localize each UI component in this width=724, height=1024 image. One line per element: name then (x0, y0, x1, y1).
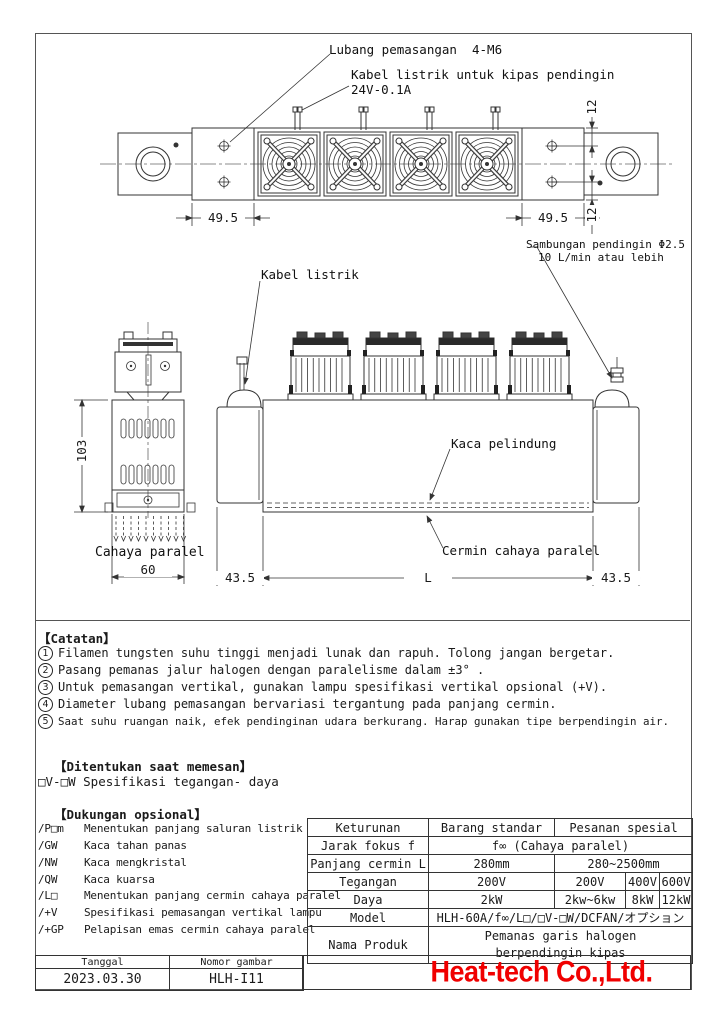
cooling-fan-array (258, 107, 518, 196)
option-desc: Kaca mengkristal (84, 856, 187, 869)
voltage-special-1: 200V (555, 873, 626, 891)
option-code: /NW (38, 856, 84, 869)
note-text: Untuk pemasangan vertikal, gunakan lampu… (58, 680, 607, 694)
product-line1: Pemanas garis halogen (485, 929, 637, 943)
voltage-standard: 200V (429, 873, 555, 891)
spec-row-voltage: Tegangan 200V 200V 400V 600V (308, 873, 693, 891)
fan-cable-label-line2: 24V-0.1A (351, 82, 411, 97)
dim-offset-top: 12 (585, 97, 599, 117)
option-desc: Kaca tahan panas (84, 839, 187, 852)
spec-row-power: Daya 2kW 2kw~6kw 8kW 12kW (308, 891, 693, 909)
option-desc: Pelapisan emas cermin cahaya paralel (84, 923, 315, 936)
cable-terminal-dome (227, 390, 261, 407)
date-value: 2023.03.30 (36, 969, 170, 991)
heater-unit-array (288, 332, 572, 400)
note-number: 3 (38, 680, 53, 695)
focus-value: f∞ (Cahaya paralel) (429, 837, 693, 855)
note-item: 5Saat suhu ruangan naik, efek pendingina… (38, 714, 669, 729)
voltage-label: Tegangan (308, 873, 429, 891)
coolant-label-line2: 10 L/min atau lebih (526, 251, 664, 264)
parallel-mirror-label: Cermin cahaya paralel (442, 543, 600, 558)
front-view-drawing (217, 247, 639, 586)
mirror-special: 280~2500mm (555, 855, 693, 873)
drawing-number-label: Nomor gambar (170, 956, 304, 969)
mirror-label: Panjang cermin L (308, 855, 429, 873)
drawing-number-value: HLH-I11 (170, 969, 304, 991)
cooling-fan (258, 107, 320, 196)
coolant-nipple-dome (595, 390, 629, 407)
dim-front-right: 43.5 (592, 571, 640, 585)
voltage-special-3: 600V (660, 873, 693, 891)
mirror-standard: 280mm (429, 855, 555, 873)
spec-row-focus: Jarak fokus f f∞ (Cahaya paralel) (308, 837, 693, 855)
model-value: HLH-60A/f∞/L□/□V-□W/DCFAN/オプション (429, 909, 693, 927)
option-item: /QWKaca kuarsa (38, 873, 155, 886)
option-code: /QW (38, 873, 84, 886)
note-number: 2 (38, 663, 53, 678)
dim-end-right: 49.5 (531, 211, 575, 225)
dim-offset-bottom: 12 (585, 205, 599, 225)
option-desc: Spesifikasi pemasangan vertikal lampu (84, 906, 322, 919)
option-code: /GW (38, 839, 84, 852)
option-desc: Menentukan panjang cermin cahaya paralel (84, 889, 341, 902)
fan-cable-label: Kabel listrik untuk kipas pendingin24V-0… (351, 67, 614, 97)
title-block-table: Tanggal Nomor gambar 2023.03.30 HLH-I11 (35, 955, 304, 991)
cooling-fan (324, 107, 386, 196)
options-heading: 【Dukungan opsional】 (54, 804, 207, 823)
option-item: /NWKaca mengkristal (38, 856, 187, 869)
title-block-header-row: Tanggal Nomor gambar (36, 956, 304, 969)
note-item: 1Filamen tungsten suhu tinggi menjadi lu… (38, 646, 614, 661)
note-text: Pasang pemanas jalur halogen dengan para… (58, 663, 484, 677)
title-block-value-row: 2023.03.30 HLH-I11 (36, 969, 304, 991)
company-logo: Heat-tech Co.,Ltd. (430, 956, 652, 989)
spec-col-special: Pesanan spesial (555, 819, 693, 837)
coolant-label-line1: Sambungan pendingin Φ2.5 (526, 238, 685, 251)
power-special-3: 12kW (660, 891, 693, 909)
note-text: Saat suhu ruangan naik, efek pendinginan… (58, 715, 669, 728)
ordering-heading: 【Ditentukan saat memesan】 (54, 756, 252, 775)
focus-label: Jarak fokus f (308, 837, 429, 855)
heater-unit (507, 332, 572, 400)
spec-row-mirror-length: Panjang cermin L 280mm 280~2500mm (308, 855, 693, 873)
option-code: /+GP (38, 923, 84, 936)
vent-slots (121, 419, 174, 484)
note-number: 5 (38, 714, 53, 729)
cooling-fan (390, 107, 452, 196)
power-label: Daya (308, 891, 429, 909)
note-item: 4Diameter lubang pemasangan bervariasi t… (38, 697, 557, 712)
dim-end-left: 49.5 (201, 211, 245, 225)
heater-unit (288, 332, 353, 400)
option-item: /P□mMenentukan panjang saluran listrik (38, 822, 302, 835)
heater-unit (361, 332, 426, 400)
parallel-light-label: Cahaya paralel (95, 545, 201, 560)
note-number: 4 (38, 697, 53, 712)
power-cable-label: Kabel listrik (261, 267, 359, 282)
ordering-item: □V-□W Spesifikasi tegangan- daya (38, 774, 279, 789)
note-item: 3Untuk pemasangan vertikal, gunakan lamp… (38, 680, 607, 695)
protective-glass-label: Kaca pelindung (451, 436, 556, 451)
spec-col-category: Keturunan (308, 819, 429, 837)
option-item: /+GPPelapisan emas cermin cahaya paralel (38, 923, 315, 936)
fan-cable-label-line1: Kabel listrik untuk kipas pendingin (351, 67, 614, 82)
option-item: /L□Menentukan panjang cermin cahaya para… (38, 889, 341, 902)
drawing-sheet: Lubang pemasangan 4-M6 Kabel listrik unt… (0, 0, 724, 1024)
option-code: /P□m (38, 822, 84, 835)
voltage-special-2: 400V (626, 873, 660, 891)
note-text: Filamen tungsten suhu tinggi menjadi lun… (58, 646, 614, 660)
dim-front-left: 43.5 (216, 571, 264, 585)
power-special-2: 8kW (626, 891, 660, 909)
top-view-leaders (230, 54, 349, 142)
power-standard: 2kW (429, 891, 555, 909)
model-label: Model (308, 909, 429, 927)
spec-header-row: Keturunan Barang standar Pesanan spesial (308, 819, 693, 837)
dim-side-height: 103 (75, 437, 89, 465)
coolant-connection-label: Sambungan pendingin Φ2.510 L/min atau le… (526, 238, 685, 264)
note-number: 1 (38, 646, 53, 661)
option-desc: Kaca kuarsa (84, 873, 155, 886)
spec-table: Keturunan Barang standar Pesanan spesial… (307, 818, 693, 964)
mounting-hole-label: Lubang pemasangan 4-M6 (329, 42, 502, 57)
option-item: /+VSpesifikasi pemasangan vertikal lampu (38, 906, 322, 919)
company-logo-box: Heat-tech Co.,Ltd. (302, 955, 691, 990)
spec-col-standard: Barang standar (429, 819, 555, 837)
heater-unit (434, 332, 499, 400)
notes-heading: 【Catatan】 (38, 628, 116, 647)
note-item: 2Pasang pemanas jalur halogen dengan par… (38, 663, 484, 678)
option-item: /GWKaca tahan panas (38, 839, 187, 852)
spec-row-model: Model HLH-60A/f∞/L□/□V-□W/DCFAN/オプション (308, 909, 693, 927)
option-desc: Menentukan panjang saluran listrik (84, 822, 302, 835)
option-code: /+V (38, 906, 84, 919)
note-text: Diameter lubang pemasangan bervariasi te… (58, 697, 557, 711)
power-special-1: 2kw~6kw (555, 891, 626, 909)
parallel-light-rays (114, 516, 186, 541)
dim-front-length: L (404, 571, 452, 585)
cooling-fan (456, 107, 518, 196)
date-label: Tanggal (36, 956, 170, 969)
dim-side-width: 60 (124, 563, 172, 577)
option-code: /L□ (38, 889, 84, 902)
